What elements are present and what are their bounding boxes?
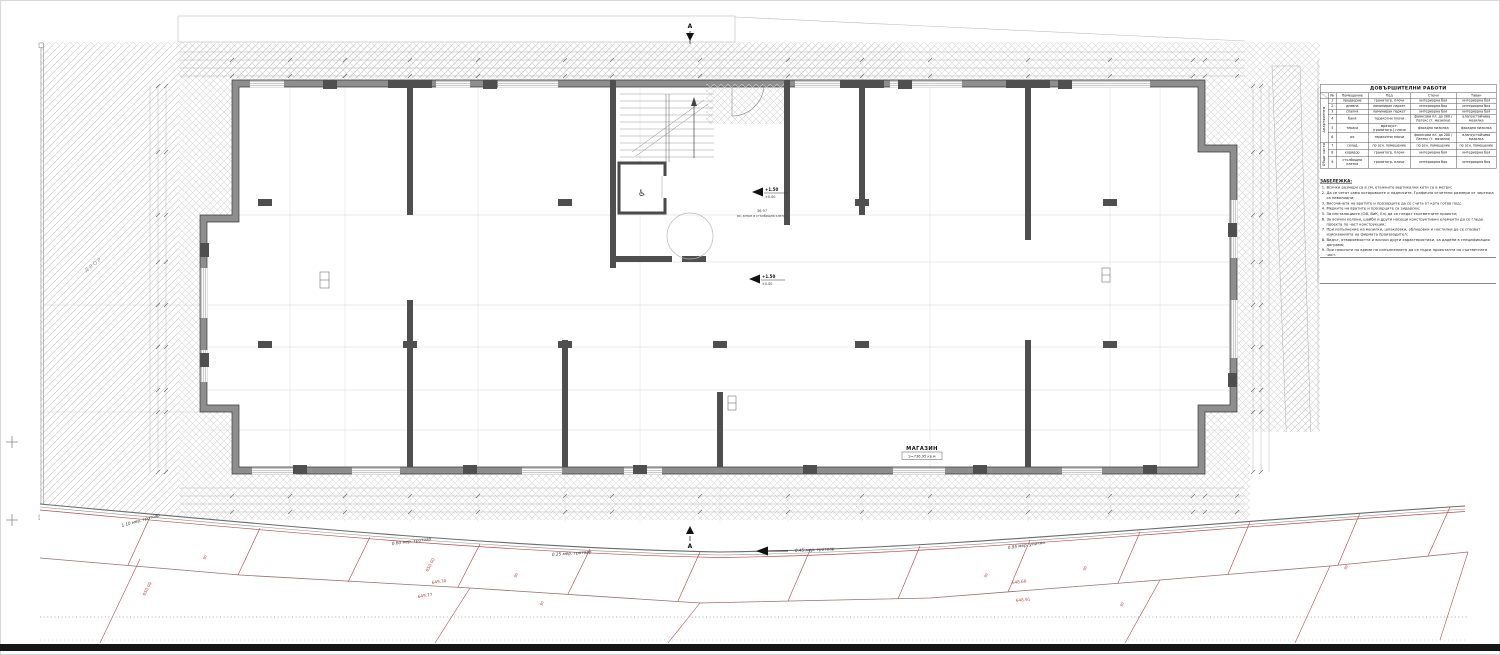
info-panel: ДОВЪРШИТЕЛНИ РАБОТИ №ПомещениеПодСтениТа… <box>1320 84 1499 649</box>
table-cell: 4 <box>1328 114 1336 123</box>
note-item: За инсталациите (ОВ, ВиК, Ел) да се глед… <box>1327 212 1497 217</box>
table-cell: фасадна мазилка <box>1410 124 1456 133</box>
table-title: ДОВЪРШИТЕЛНИ РАБОТИ <box>1320 84 1496 93</box>
table-cell: 8 <box>1328 149 1336 156</box>
room-area: S=736.95 кв.м <box>908 455 935 459</box>
wheelchair-icon: ♿ <box>638 189 646 199</box>
table-cell: влагоустойчива мазилка <box>1456 133 1496 142</box>
level-value: +1.50 <box>765 187 778 192</box>
level-datum: ±0.00 <box>762 282 772 286</box>
table-cell: 5 <box>1328 124 1336 133</box>
table-cell: интериорна боя <box>1410 149 1456 156</box>
table-cell: стълбищна клетка <box>1336 156 1368 168</box>
table-row: 5терасамразоуст. (гранитогр.) плочифасад… <box>1320 124 1496 133</box>
group-label: Общи части <box>1320 142 1328 168</box>
note-item: Видът, отваряемостта и всички други хара… <box>1327 237 1497 247</box>
table-row: 4банятеракотни плочифаянсови пл. до 200 … <box>1320 114 1496 123</box>
section-letter: А <box>688 543 693 550</box>
table-cell: 6 <box>1328 133 1336 142</box>
section-mark-bottom: А <box>686 526 694 550</box>
table-cell: интериорна боя <box>1410 156 1456 168</box>
table-cell: 7 <box>1328 142 1336 149</box>
table-row: Общи части7складпо осн. помещениепо осн.… <box>1320 142 1496 149</box>
table-cell: фасадна мазилка <box>1456 124 1496 133</box>
room-name: МАГАЗИН <box>906 446 938 452</box>
table-cell: фаянсови пл. до 200 / Латекс (т. мазилка… <box>1410 114 1456 123</box>
building: ♿ 36.97 вх. антре и стълбищна клетка +1.… <box>200 80 1237 474</box>
street-survey: А 1.10 мер. тротоар0.60 мер. тротоар0.25… <box>40 504 1500 655</box>
notes-block: ЗАБЕЛЕЖКА: Всички размери са в см, етажн… <box>1320 179 1496 258</box>
table-cell: фаянсови пл. до 200 / Латекс (т. мазилка… <box>1410 133 1456 142</box>
finishing-works-table: ДОВЪРШИТЕЛНИ РАБОТИ №ПомещениеПодСтениТа… <box>1320 84 1497 169</box>
note-item: При изпълнение на мазилки, шпакловки, об… <box>1327 227 1497 237</box>
top-adjacent-lines <box>178 16 1245 42</box>
stair-area-label: 36.97 <box>757 209 767 213</box>
table-cell: гранитогр. плочи <box>1368 156 1410 168</box>
table-row: 6wcтеракотни плочифаянсови пл. до 200 / … <box>1320 133 1496 142</box>
table-cell: влагоустойчива мазилка <box>1456 114 1496 123</box>
table-cell: по осн. помещение <box>1456 142 1496 149</box>
note-item: Височината на вратите и прозорците да се… <box>1327 201 1497 206</box>
floor-plan-drawing: ♿ 36.97 вх. антре и стълбищна клетка +1.… <box>0 0 1500 655</box>
level-datum: ±0.00 <box>765 195 775 199</box>
note-item: При неясноти по време на изпълнението да… <box>1327 248 1497 258</box>
registration-marks <box>6 436 18 526</box>
table-cell: гранитогр. плочи <box>1368 149 1410 156</box>
table-cell: баня <box>1336 114 1368 123</box>
note-item: За всички колони, шайби и други носещи к… <box>1327 217 1497 227</box>
section-letter: А <box>688 23 693 30</box>
table-cell: тераса <box>1336 124 1368 133</box>
table-cell: по осн. помещение <box>1368 142 1410 149</box>
group-label: Апартаменти <box>1320 98 1328 142</box>
stair-caption: вх. антре и стълбищна клетка <box>737 214 787 218</box>
note-item: Всички размери са в см, етажните вертика… <box>1327 185 1497 190</box>
table-cell: wc <box>1336 133 1368 142</box>
note-item: Да се четат само котировките и надписите… <box>1327 190 1497 200</box>
table-cell: склад <box>1336 142 1368 149</box>
table-cell: коридор <box>1336 149 1368 156</box>
table-cell: мразоуст. (гранитогр.) плочи <box>1368 124 1410 133</box>
drawing-sheet: ♿ 36.97 вх. антре и стълбищна клетка +1.… <box>0 0 1500 655</box>
table-cell: теракотни плочи <box>1368 114 1410 123</box>
note-item: Мерките на вратите и прозорците са зидар… <box>1327 206 1497 211</box>
table-cell: 9 <box>1328 156 1336 168</box>
table-row: 9стълбищна клеткагранитогр. плочиинтерио… <box>1320 156 1496 168</box>
table-cell: теракотни плочи <box>1368 133 1410 142</box>
table-cell: интериорна боя <box>1456 149 1496 156</box>
elevator: ♿ <box>619 163 667 213</box>
panel-divider <box>1320 257 1496 258</box>
table-row: 8коридоргранитогр. плочиинтериорна бояин… <box>1320 149 1496 156</box>
table-cell: интериорна боя <box>1456 156 1496 168</box>
notes-heading: ЗАБЕЛЕЖКА: <box>1320 179 1496 184</box>
table-cell: ламиниран паркет <box>1368 104 1410 109</box>
title-block-edge <box>0 644 1500 651</box>
table-cell: по осн. помещение <box>1410 142 1456 149</box>
entry-vestibule <box>706 84 784 124</box>
table-cell: гранитогр. плочи <box>1368 98 1410 103</box>
table-cell: ламиниран паркет <box>1368 109 1410 114</box>
panel-divider <box>1320 283 1496 284</box>
level-value: +1.50 <box>762 274 775 279</box>
